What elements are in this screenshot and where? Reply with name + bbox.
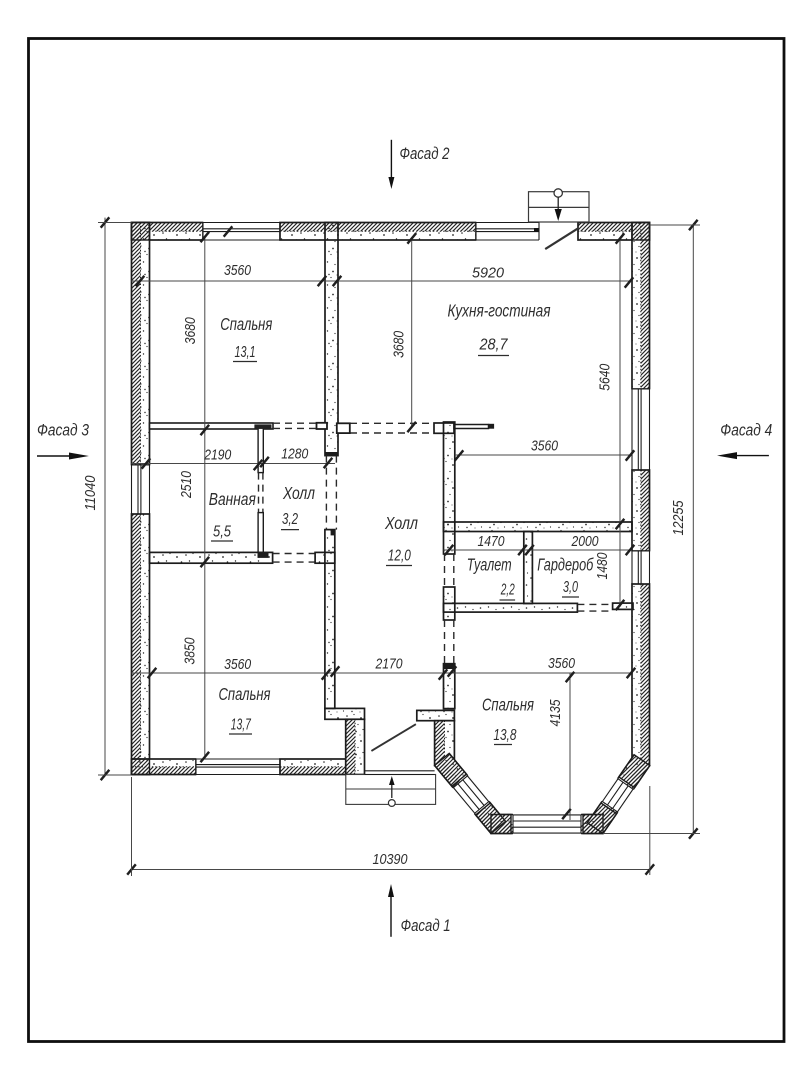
svg-text:2190: 2190 bbox=[203, 448, 231, 464]
svg-text:2,2: 2,2 bbox=[500, 582, 515, 599]
svg-text:Кухня-гостиная: Кухня-гостиная bbox=[448, 301, 551, 321]
svg-text:3,0: 3,0 bbox=[563, 579, 578, 596]
svg-text:11040: 11040 bbox=[83, 476, 99, 511]
svg-text:2170: 2170 bbox=[375, 657, 403, 673]
svg-text:Фасад 1: Фасад 1 bbox=[401, 917, 451, 935]
svg-text:3560: 3560 bbox=[548, 656, 575, 672]
svg-text:13,8: 13,8 bbox=[493, 727, 516, 744]
svg-text:Фасад 2: Фасад 2 bbox=[400, 145, 450, 163]
svg-text:Холл: Холл bbox=[282, 483, 315, 503]
svg-text:Туалет: Туалет bbox=[467, 555, 512, 575]
svg-text:12,0: 12,0 bbox=[388, 548, 411, 565]
svg-text:Фасад 4: Фасад 4 bbox=[720, 422, 772, 440]
svg-text:10390: 10390 bbox=[373, 852, 408, 868]
svg-text:3680: 3680 bbox=[391, 331, 407, 358]
svg-text:2000: 2000 bbox=[571, 534, 599, 550]
svg-text:13,1: 13,1 bbox=[235, 344, 256, 361]
svg-text:Спальня: Спальня bbox=[219, 684, 271, 704]
svg-text:3680: 3680 bbox=[183, 317, 199, 344]
svg-text:12255: 12255 bbox=[671, 500, 687, 536]
svg-text:3560: 3560 bbox=[531, 439, 558, 455]
svg-text:3560: 3560 bbox=[224, 657, 251, 673]
svg-text:2510: 2510 bbox=[179, 471, 195, 499]
svg-text:Спальня: Спальня bbox=[482, 695, 534, 715]
svg-text:Гардероб: Гардероб bbox=[537, 555, 594, 575]
svg-text:1280: 1280 bbox=[281, 447, 308, 463]
svg-text:28,7: 28,7 bbox=[479, 337, 509, 354]
svg-text:1480: 1480 bbox=[595, 553, 611, 580]
svg-text:Спальня: Спальня bbox=[220, 314, 272, 334]
svg-text:Холл: Холл bbox=[384, 513, 418, 533]
svg-text:13,7: 13,7 bbox=[231, 717, 252, 734]
svg-text:3,2: 3,2 bbox=[282, 511, 298, 528]
svg-text:5640: 5640 bbox=[598, 364, 614, 391]
svg-text:5,5: 5,5 bbox=[213, 524, 231, 541]
svg-text:5920: 5920 bbox=[472, 266, 504, 282]
svg-text:4135: 4135 bbox=[548, 699, 564, 727]
svg-text:Ванная: Ванная bbox=[209, 489, 256, 509]
svg-text:3850: 3850 bbox=[182, 638, 198, 665]
svg-text:3560: 3560 bbox=[224, 263, 251, 279]
svg-text:1470: 1470 bbox=[478, 534, 505, 550]
svg-text:Фасад 3: Фасад 3 bbox=[37, 422, 90, 440]
